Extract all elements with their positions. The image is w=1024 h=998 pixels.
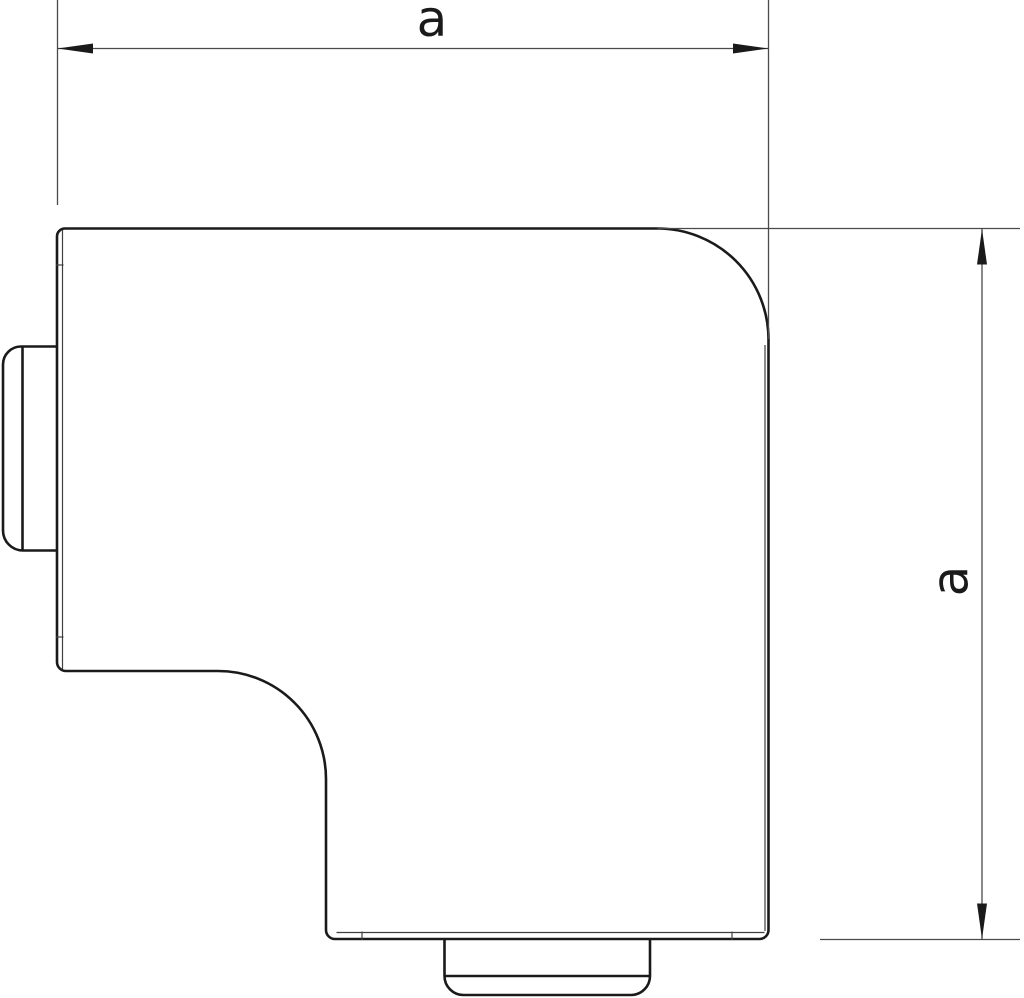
height-arrowhead-top xyxy=(977,229,987,265)
left-coupling-outline xyxy=(3,347,57,551)
width-arrowhead-left xyxy=(58,44,94,54)
drawing-canvas: a a xyxy=(0,0,1024,998)
width-arrowhead-right xyxy=(733,44,769,54)
width-dimension-label: a xyxy=(417,0,448,48)
technical-drawing: a a xyxy=(0,0,1024,998)
bottom-coupling-outline xyxy=(445,938,651,995)
body-outline xyxy=(57,229,769,940)
bottom-coupling xyxy=(445,938,651,995)
left-coupling xyxy=(3,347,57,551)
height-dimension-label: a xyxy=(922,566,980,597)
height-arrowhead-bottom xyxy=(977,904,987,940)
